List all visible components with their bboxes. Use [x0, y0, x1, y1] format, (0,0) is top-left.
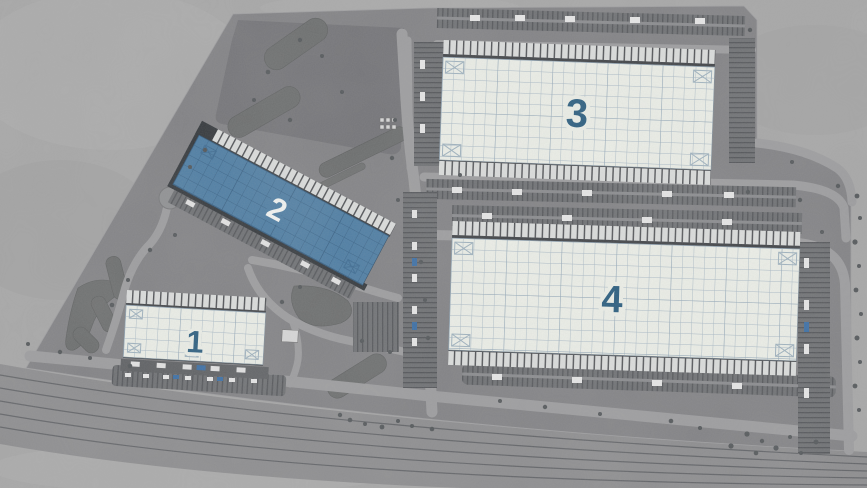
- noise-overlay-fine: [0, 0, 867, 488]
- site-plan: 3 4 1: [0, 0, 867, 488]
- site-plan-canvas: 3 4 1: [0, 0, 867, 488]
